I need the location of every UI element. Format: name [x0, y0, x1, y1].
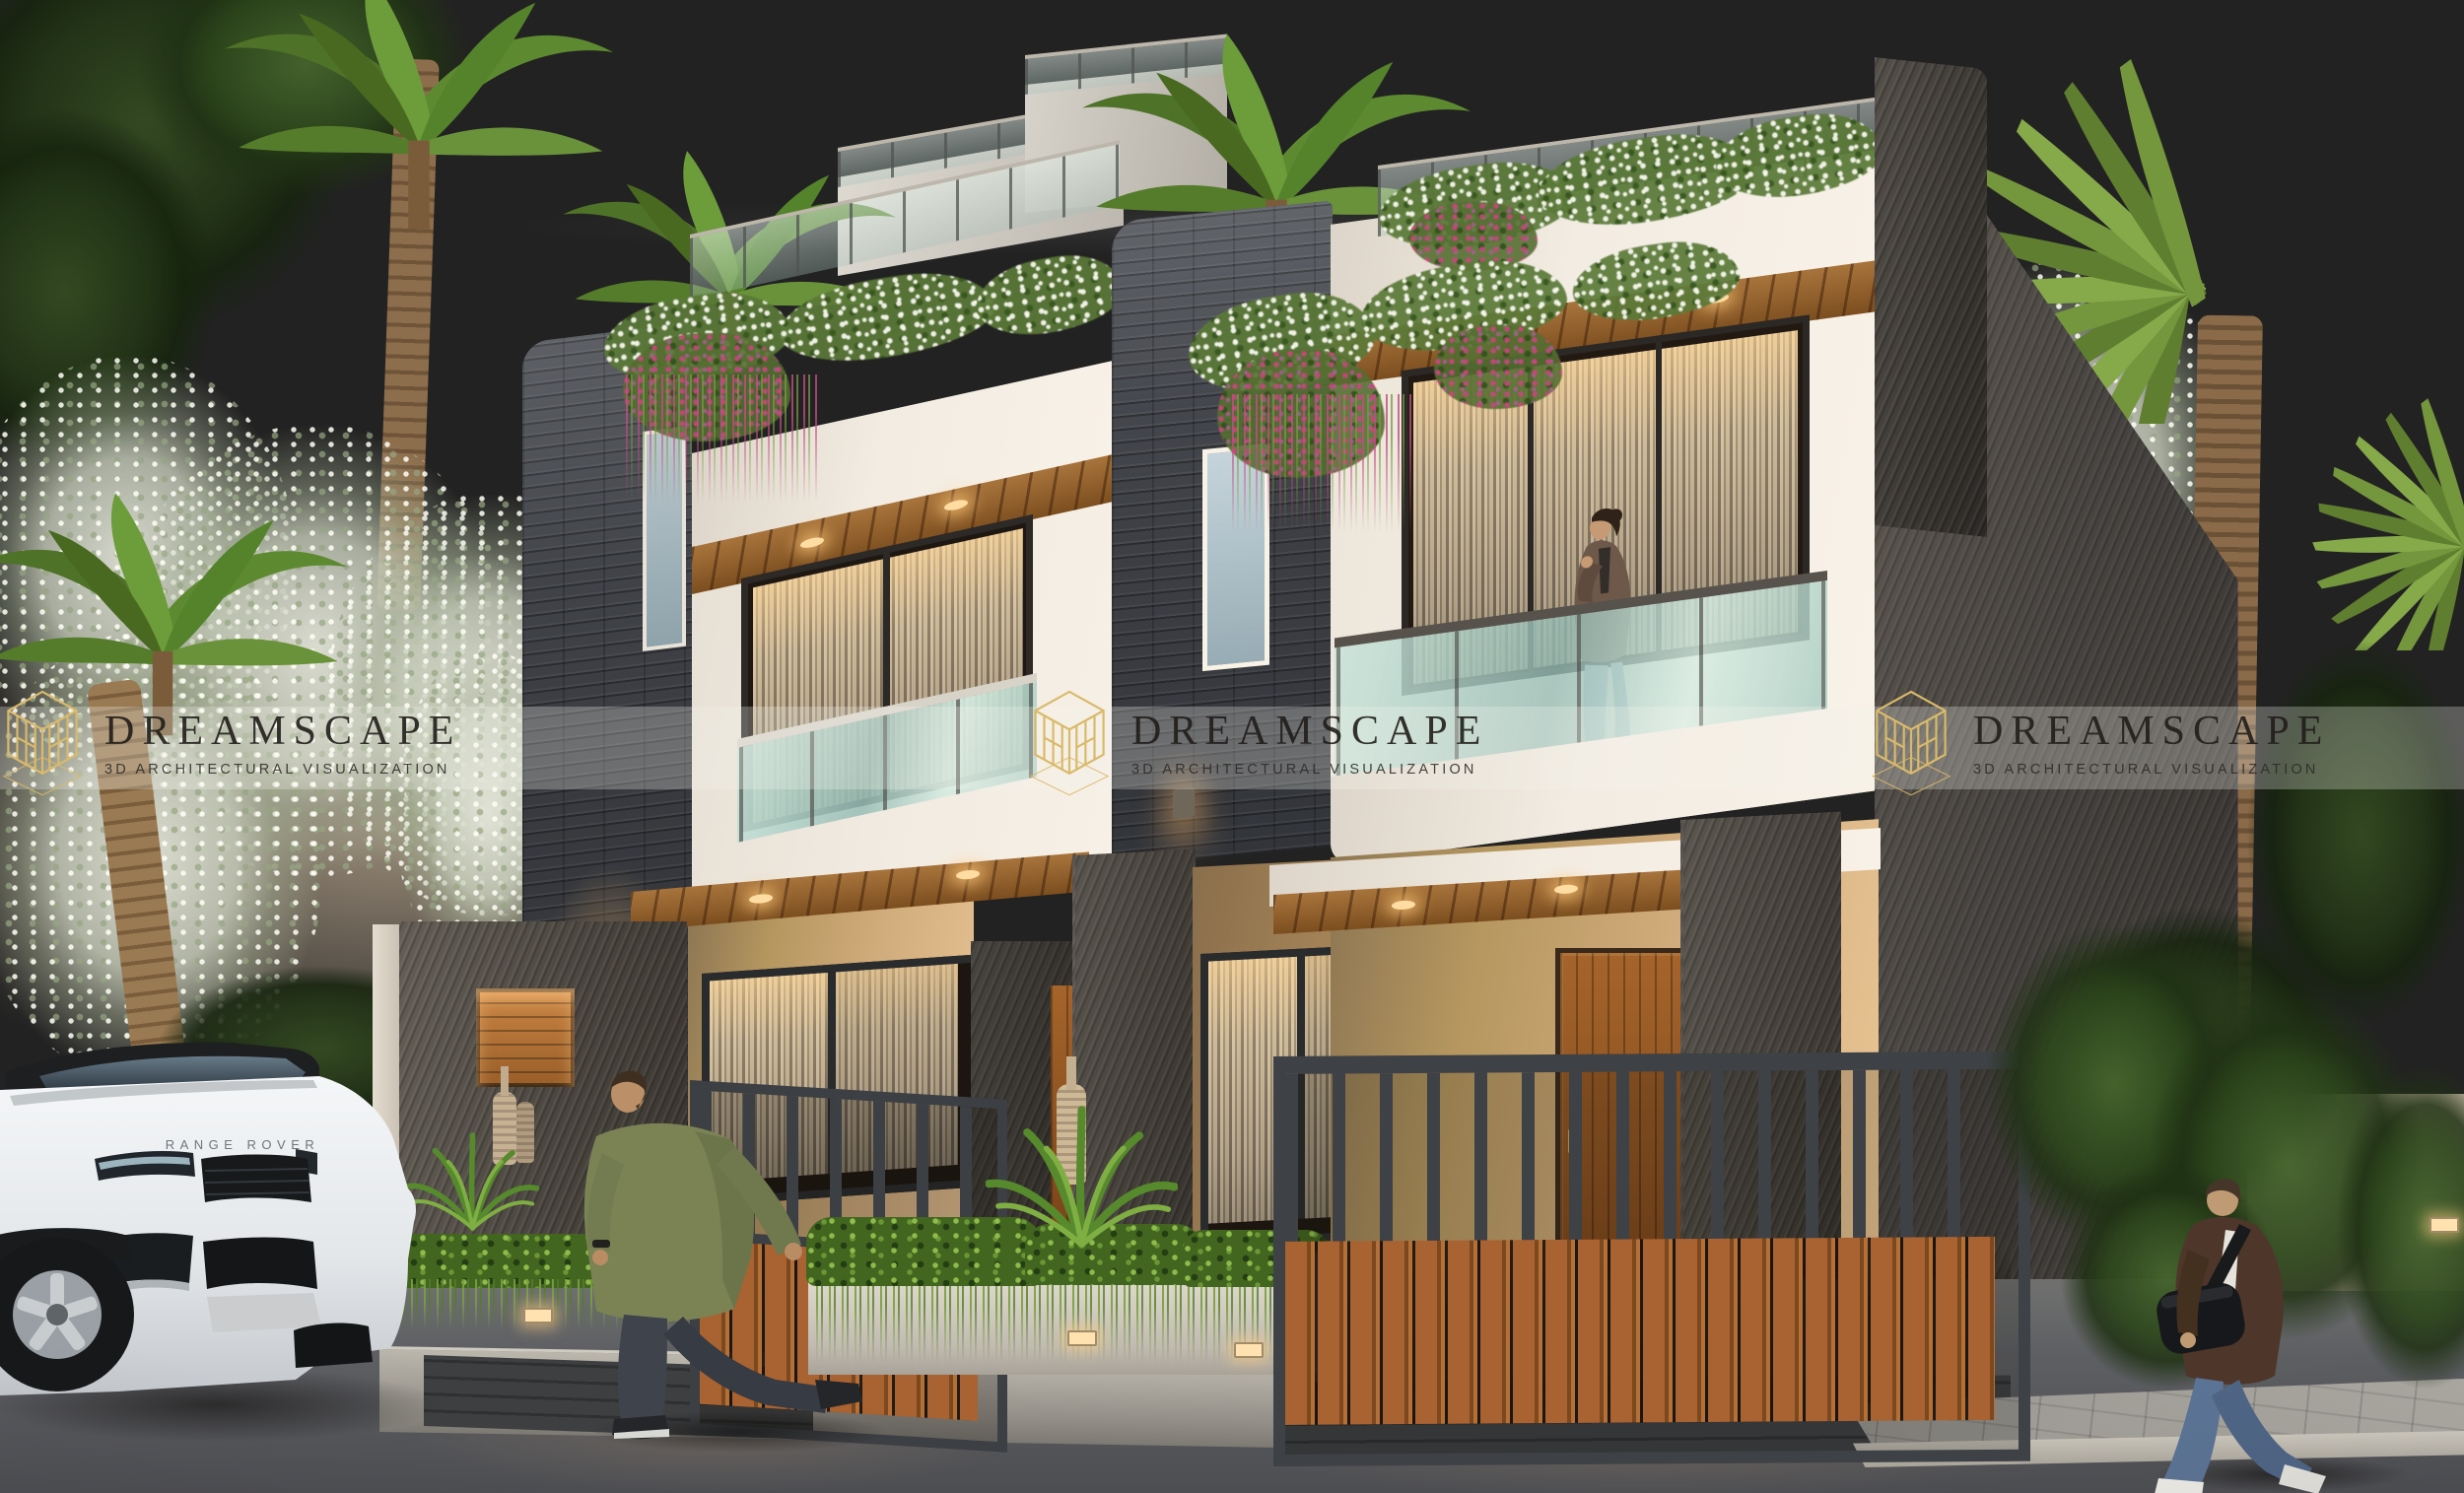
watermark-tagline: 3D ARCHITECTURAL VISUALIZATION — [1973, 762, 2330, 778]
watermark-left: DREAMSCAPE 3D ARCHITECTURAL VISUALIZATIO… — [2, 684, 461, 800]
watermark-text: DREAMSCAPE 3D ARCHITECTURAL VISUALIZATIO… — [104, 708, 461, 778]
watermark-right: DREAMSCAPE 3D ARCHITECTURAL VISUALIZATIO… — [1871, 684, 2330, 800]
watermark-brand: DREAMSCAPE — [1131, 708, 1488, 755]
watermark-text: DREAMSCAPE 3D ARCHITECTURAL VISUALIZATIO… — [1973, 708, 2330, 778]
dreamscape-logo-icon — [2, 684, 83, 800]
watermark-brand: DREAMSCAPE — [1973, 708, 2330, 755]
watermark-text: DREAMSCAPE 3D ARCHITECTURAL VISUALIZATIO… — [1131, 708, 1488, 778]
watermark-tagline: 3D ARCHITECTURAL VISUALIZATION — [104, 762, 461, 778]
architectural-render: RANGE ROVER — [0, 0, 2464, 1493]
watermark-tagline: 3D ARCHITECTURAL VISUALIZATION — [1131, 762, 1488, 778]
dreamscape-logo-icon — [1871, 684, 1951, 800]
watermark-center: DREAMSCAPE 3D ARCHITECTURAL VISUALIZATIO… — [1029, 684, 1488, 800]
dreamscape-logo-icon — [1029, 684, 1110, 800]
watermark-brand: DREAMSCAPE — [104, 708, 461, 755]
